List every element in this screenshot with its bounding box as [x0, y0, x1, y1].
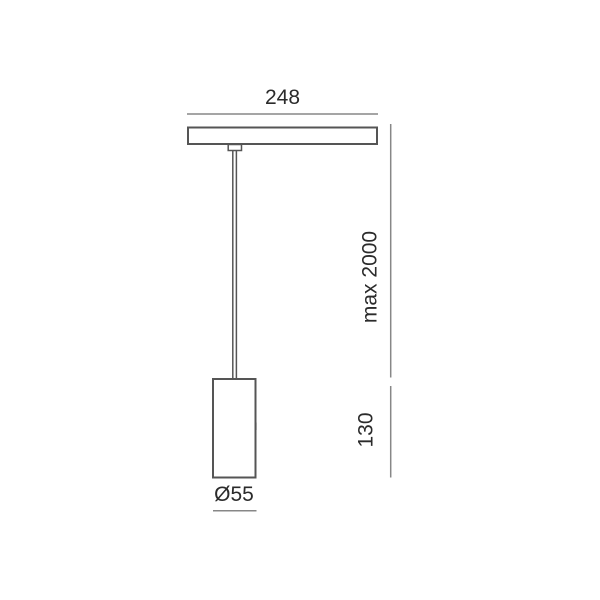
label-body-diameter: Ø55: [211, 484, 257, 505]
drawing-canvas: 248 max 2000 130 Ø55: [0, 0, 600, 600]
label-max-suspension: max 2000: [360, 231, 381, 323]
track-bar: [188, 128, 377, 145]
label-track-width: 248: [187, 87, 378, 108]
lamp-body: [213, 379, 256, 478]
cable-connector: [228, 145, 241, 151]
label-body-height: 130: [356, 412, 377, 447]
